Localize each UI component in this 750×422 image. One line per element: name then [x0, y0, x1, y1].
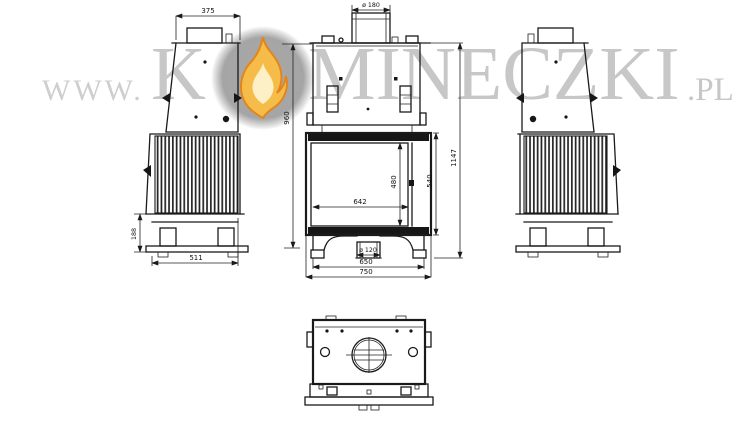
flue-stub-side-left: [187, 28, 222, 43]
flue-stub-side-right: [538, 28, 573, 43]
dim-base-width: 650: [359, 258, 372, 266]
dim-upper-height: 960: [283, 111, 291, 124]
right-side-view: [516, 28, 621, 257]
door-handle-left: [143, 165, 151, 177]
bolt-hole-left: [321, 348, 330, 357]
side-boss: [530, 116, 536, 122]
door-latch: [409, 180, 414, 186]
left-side-view: 375 188: [131, 7, 248, 266]
cast-iron-fins-left: [155, 136, 238, 213]
air-vent-lever-right: [400, 86, 411, 112]
bolt-hole-right: [409, 348, 418, 357]
dim-base-height: 188: [131, 228, 138, 240]
bottom-plan-view: [305, 316, 433, 410]
dim-glass-height: 480: [390, 175, 398, 188]
air-vent-lever-left: [327, 86, 338, 112]
dim-total-height: 1147: [450, 149, 458, 167]
dim-flue-diameter: ø 180: [362, 2, 380, 9]
dim-firebox-height: 540: [426, 174, 434, 187]
dim-glass-width: 642: [353, 198, 366, 206]
flue-opening-plan: [346, 337, 392, 373]
air-inlet: ø 120: [355, 242, 382, 258]
front-view: ø 180: [282, 2, 463, 277]
flue-stub-front: [352, 13, 390, 43]
drawing-canvas: WWW. K MINECZKI .PL: [0, 0, 750, 422]
dim-depth: 511: [189, 254, 202, 262]
dim-air-inlet: ø 120: [359, 247, 377, 254]
dim-total-width: 750: [359, 268, 372, 276]
side-boss: [223, 116, 229, 122]
convection-casing: [313, 43, 420, 125]
dim-top-depth: 375: [201, 7, 214, 15]
technical-drawing: 375 188: [0, 0, 750, 422]
door-handle-right: [613, 165, 621, 177]
cast-iron-fins-right: [524, 136, 607, 213]
